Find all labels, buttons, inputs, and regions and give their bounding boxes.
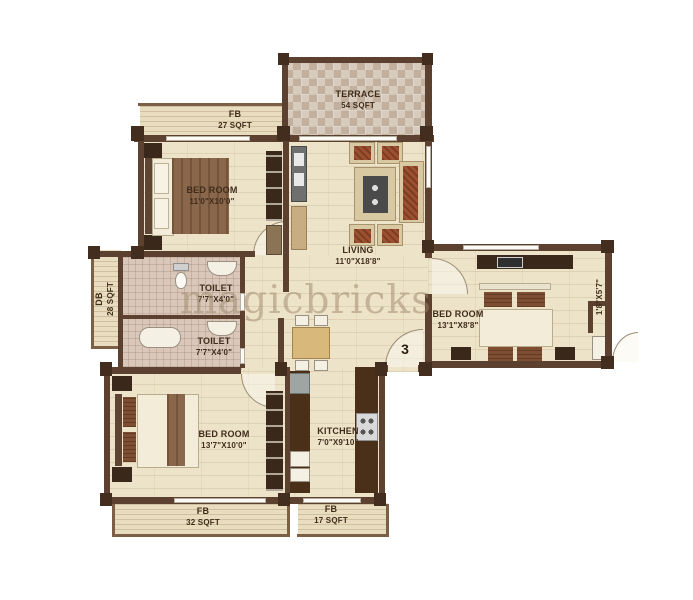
wall-post [419,362,432,376]
bedroom-bottom-label: BED ROOM 13'7"X10'0" [198,429,249,451]
wall-post [100,493,112,506]
window [174,498,266,503]
wall-post [131,246,144,259]
tv-unit [497,257,523,268]
room-dim: 13'7"X10'0" [198,441,249,451]
unit-number: 3 [401,341,409,357]
bed-pillow [154,163,169,194]
nightstand [142,143,162,158]
armchair-cushion [354,146,371,160]
bed-blanket [167,394,185,466]
sofa [399,161,424,223]
cabinet [291,206,307,250]
fb-top-strip [140,106,285,137]
bed-pillow [484,292,512,307]
wall-segment [138,103,288,106]
room-name: TOILET [196,336,232,348]
wall-post [278,53,289,65]
stove [356,413,378,441]
room-area: 32 SQFT [186,518,220,528]
kitchen-sink [290,451,310,467]
wall-segment [105,367,241,374]
bed-right-bedroom [479,283,551,371]
living-label: LIVING 11'0"X18'8" [335,245,380,267]
armchair [349,142,375,164]
coffee-table-top [363,176,388,213]
wall-post [375,362,387,376]
niche-dim-label: 1'8"X5'7" [595,279,605,315]
fb-top-label: FB 27 SQFT [218,109,252,131]
nightstand [142,235,162,250]
wardrobe [266,151,282,221]
wall-post [601,356,614,369]
armchair-cushion [354,229,371,243]
kitchen-counter-left [288,371,310,493]
wall-post [374,493,386,506]
niche-dim: 1'8"X5'7" [595,279,605,315]
wall-segment [379,365,385,504]
room-name: LIVING [335,245,380,257]
wall-segment [118,255,123,368]
room-name: KITCHEN [317,426,358,438]
armchair [377,224,403,246]
dresser [266,225,282,255]
dining-table [292,327,330,359]
wall-segment [605,244,612,368]
armchair-cushion [382,229,399,243]
room-name: FB [186,506,220,518]
kitchen-sink [290,468,310,482]
wall-segment [138,135,144,257]
toilet-door-opening [240,348,245,364]
window [303,498,361,503]
fb-bottom-right-label: FB 17 SQFT [314,504,348,526]
wall-post [277,126,290,141]
room-dim: 7'0"X9'10" [317,438,358,448]
dining-chair [295,360,309,371]
terrace-label: TERRACE 54 SQFT [336,89,381,111]
nightstand [112,376,132,391]
room-dim: 11'0"X10'0" [186,197,237,207]
bed-pillow [123,432,136,462]
room-name: FB [218,109,252,121]
wall-segment [297,534,389,537]
bed-sheet [479,309,553,347]
bed-pillow [123,397,136,427]
wall-post [420,126,433,141]
toilet-tank [173,263,189,271]
bed-headboard [479,283,551,290]
wall-post [422,240,434,253]
bathtub [139,327,181,348]
room-name: BED ROOM [198,429,249,441]
room-dim: 7'7"X4'0" [196,348,232,358]
wall-segment [91,346,121,349]
kitchen-label: KITCHEN 7'0"X9'10" [317,426,358,448]
armchair-cushion [382,146,399,160]
toilet-lower-label: TOILET 7'7"X4'0" [196,336,232,358]
bed-headboard [145,158,152,234]
wall-post [275,362,287,376]
bed-pillow [154,198,169,229]
room-name: DB [94,282,106,316]
room-name: BED ROOM [186,185,237,197]
wall-post [88,246,100,259]
wall-post [278,493,290,506]
fb-bottom-left-label: FB 32 SQFT [186,506,220,528]
wall-post [422,53,433,65]
room-name: BED ROOM [432,309,483,321]
media-unit [291,146,307,202]
floor-plan: FB 27 SQFT TERRACE 54 SQFT BED ROOM 11'0… [0,0,693,600]
wall-segment [386,504,389,537]
wall-post [100,362,112,376]
bedroom-top-label: BED ROOM 11'0"X10'0" [186,185,237,207]
room-name: FB [314,504,348,516]
room-area: 27 SQFT [218,121,252,131]
bed-bottom-bedroom [115,394,197,466]
nightstand [451,347,471,360]
room-area: 17 SQFT [314,516,348,526]
wall-segment [283,135,289,292]
magicbricks-watermark: magicbricks [180,278,432,323]
wardrobe [266,391,283,491]
dresser [477,255,573,269]
wall-segment [112,534,290,537]
media-unit-shelf [294,153,304,166]
wall-segment [278,318,284,368]
wall-segment [282,57,432,63]
room-area: 54 SQFT [336,101,381,111]
room-dim: 13'1"X8'8" [432,321,483,331]
niche-door-arc [612,332,638,362]
wall-segment [104,367,110,504]
wall-segment [428,361,612,368]
bed-pillow [517,292,545,307]
wall-segment [112,504,115,537]
coffee-table [354,167,396,221]
refrigerator [289,373,310,394]
wall-segment [588,301,593,333]
bed-headboard [115,394,122,466]
wall-post [131,126,144,141]
media-unit-shelf [294,173,304,186]
wall-post [601,240,614,253]
room-name: TERRACE [336,89,381,101]
window [463,245,539,250]
sofa-cushion [403,166,418,220]
armchair [349,224,375,246]
wall-segment [287,504,290,537]
window [166,136,250,141]
window [426,146,431,188]
bedroom-right-label: BED ROOM 13'1"X8'8" [432,309,483,331]
wall-segment [285,374,290,497]
room-area: 28 SQFT [106,282,116,316]
nightstand [555,347,575,360]
terrace-door-window [299,136,397,141]
nightstand [112,467,132,482]
dining-chair [314,360,328,371]
room-dim: 11'0"X18'8" [335,257,380,267]
db-label: DB 28 SQFT [94,282,116,316]
